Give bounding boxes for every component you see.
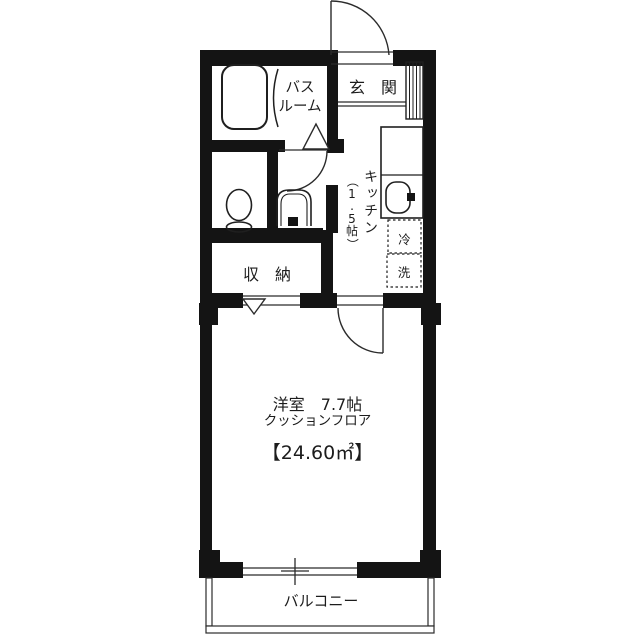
balcony-rail-bottom <box>206 626 434 633</box>
kitchen-size-char-open-paren: （ <box>346 174 359 188</box>
washbasin-tap-icon <box>288 217 298 226</box>
main-room-area-label: 【24.60㎡】 <box>230 438 405 465</box>
wall-storage-top <box>205 228 323 243</box>
entrance-label: 玄 関 <box>338 74 408 98</box>
kitchen-size-char-close-paren: ） <box>346 237 359 251</box>
main-room-floor-label: クッションフロア <box>230 409 405 429</box>
wall-entrance-left <box>327 50 338 153</box>
bathroom-label-line1: バス <box>276 79 324 98</box>
bathtub-icon <box>222 65 267 129</box>
pillar-left-bottom <box>199 550 220 578</box>
washer-label: 洗 <box>387 262 421 281</box>
kitchen-size-char-dot: . <box>345 200 359 213</box>
bathroom-label: バス ルーム <box>276 79 324 117</box>
kitchen-tap-icon <box>407 193 415 201</box>
entrance-door-arc <box>331 1 389 55</box>
pillar-left-mid <box>199 303 218 325</box>
balcony-rail-right <box>428 578 434 626</box>
bath-door-marker <box>303 124 329 149</box>
kitchen-counter <box>381 127 423 218</box>
wall-top-left <box>205 50 331 66</box>
room-door-arc <box>338 308 383 353</box>
washroom-door-arc <box>287 151 327 191</box>
pillar-right-bottom <box>420 550 441 578</box>
fridge-label: 冷 <box>388 229 421 248</box>
wall-corridor-upper <box>326 185 338 233</box>
wall-divider-mid <box>300 293 337 308</box>
kitchen-label: キッチン <box>363 161 380 245</box>
storage-label: 収 納 <box>212 261 322 285</box>
floor-plan: 玄 関 バス ルーム キッチン （ 1 . 5 帖 ） 冷 洗 収 納 洋室 7… <box>0 0 640 640</box>
balcony-rail-left <box>206 578 212 626</box>
bathroom-label-line2: ルーム <box>276 98 324 117</box>
balcony-label: バルコニー <box>250 590 392 611</box>
kitchen-size-char-jo: 帖 <box>345 225 359 238</box>
closet-door-marker <box>243 299 265 314</box>
kitchen-size-label: （ 1 . 5 帖 ） <box>345 175 359 250</box>
pillar-right-mid <box>421 303 441 325</box>
toilet-icon <box>227 190 252 221</box>
